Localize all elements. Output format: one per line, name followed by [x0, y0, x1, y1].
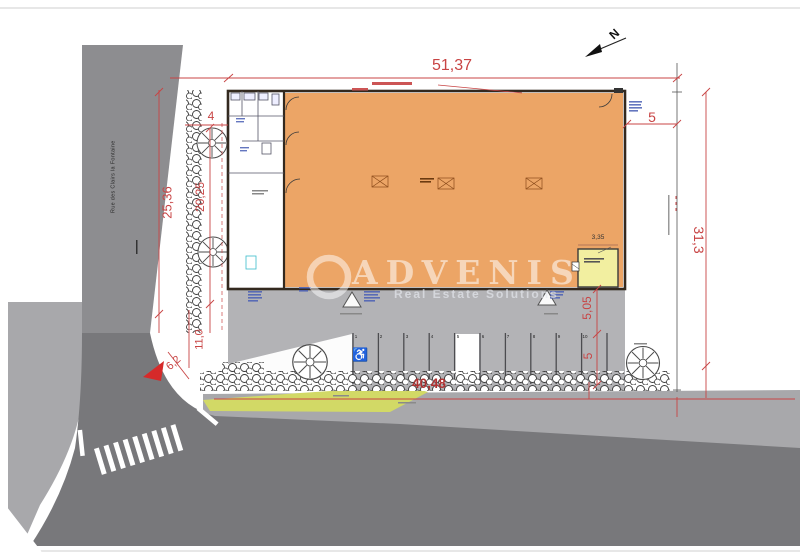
stall-number-1: 1 [351, 335, 361, 340]
wheelchair-icon: ♿ [352, 348, 368, 361]
dim-stall-depth: 5 [582, 344, 594, 368]
north-arrow-icon [585, 38, 626, 57]
dim-top-width: 51,37 [407, 58, 497, 74]
parcel-boundary [672, 63, 682, 392]
interior-rooms [228, 91, 284, 269]
dim-right-height: 31,3 [692, 212, 706, 268]
dim-local-width: 3,35 [583, 235, 613, 242]
stall-number-3: 3 [402, 335, 412, 340]
stall-number-9: 9 [554, 335, 564, 340]
stall-number-5: 5 [453, 335, 463, 340]
dim-apron-depth: 5,05 [581, 283, 593, 333]
street-name-label: Rue des Clairs la Fontaine [111, 122, 117, 232]
watermark-brand: ADVENIS [352, 256, 582, 289]
dim-right-setback: 5 [641, 110, 663, 124]
stall-number-2: 2 [376, 335, 386, 340]
dim-access-width: 11,0 [195, 315, 206, 365]
site-plan-page: 51,37 31,3 5 25,36 20,25 4 11,0 6,2 5,05… [0, 0, 800, 560]
stall-number-10: 10 [580, 335, 590, 340]
watermark-tagline: Real Estate Solutions [394, 288, 559, 300]
dim-frontage-bottom: 40,48 [404, 377, 454, 391]
dim-landscape-strip: 20,25 [194, 161, 206, 233]
stall-number-6: 6 [478, 335, 488, 340]
stall-number-8: 8 [529, 335, 539, 340]
stall-number-7: 7 [503, 335, 513, 340]
dim-left-frontage: 25,36 [161, 167, 174, 239]
stall-number-4: 4 [427, 335, 437, 340]
dim-hedge-width: 4 [203, 110, 219, 122]
